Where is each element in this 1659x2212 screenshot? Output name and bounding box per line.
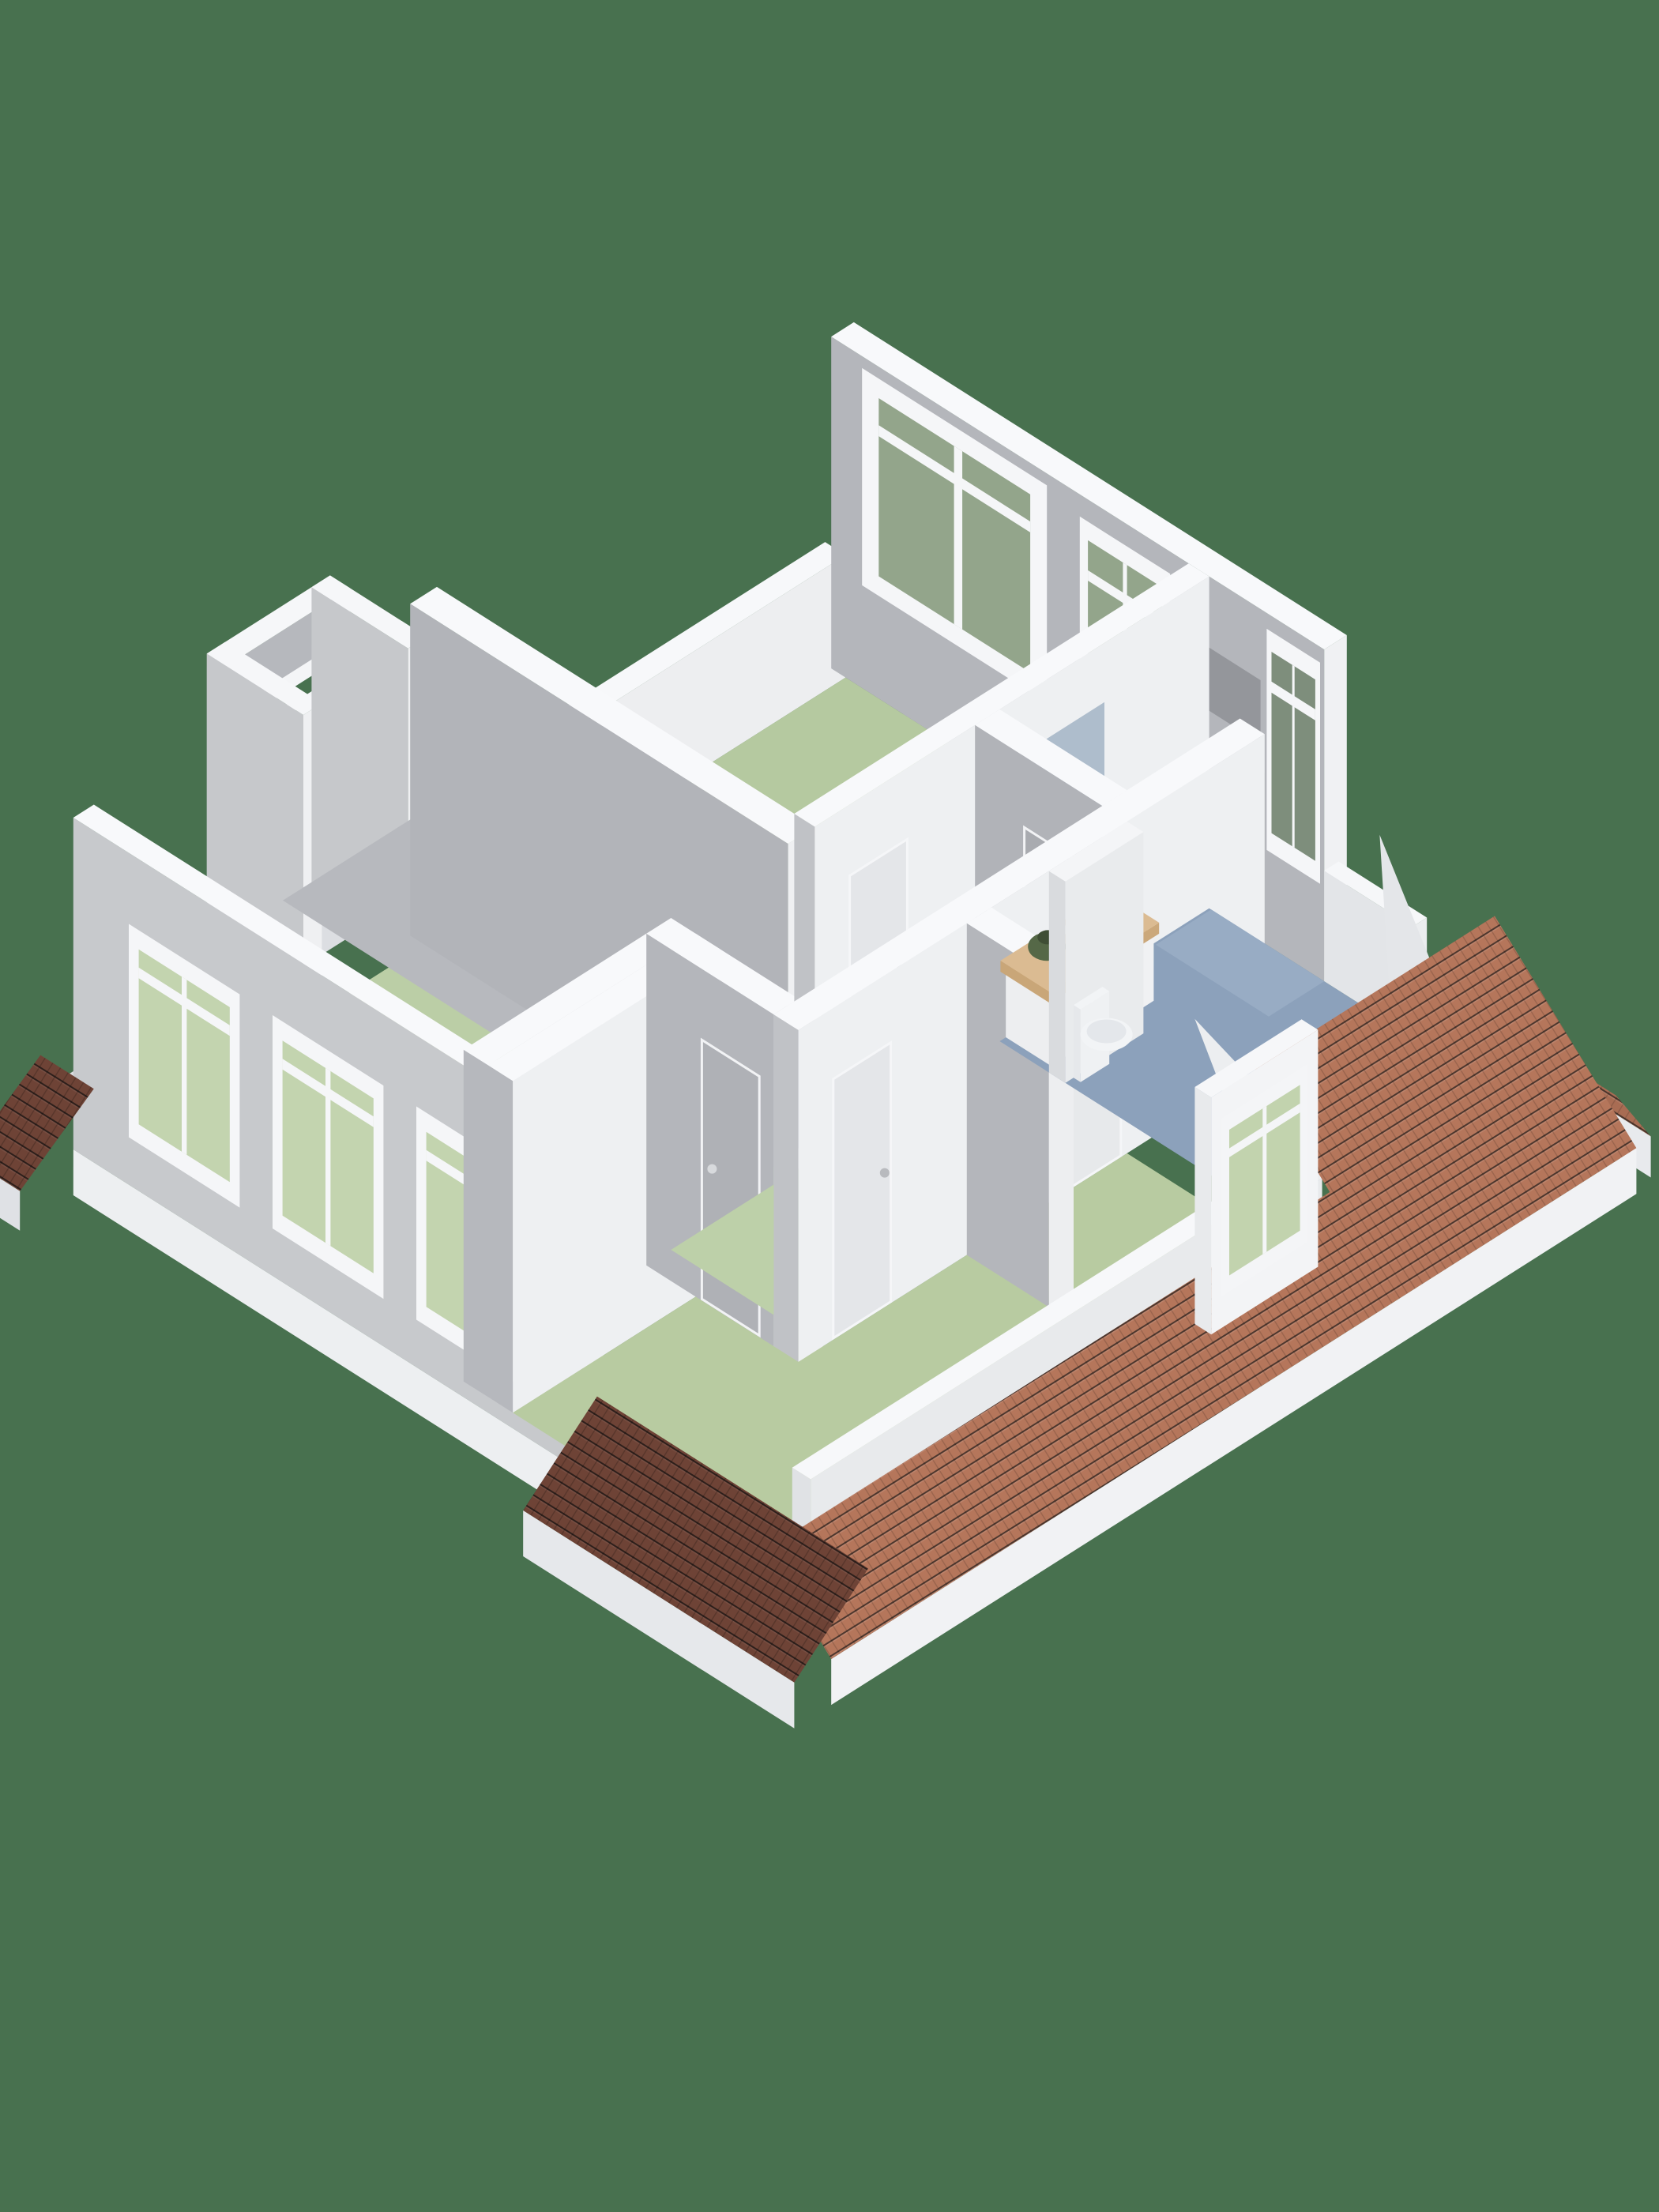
window-bathroom-mullion bbox=[1292, 665, 1295, 848]
window-bedroom1-mullion bbox=[954, 446, 963, 630]
wall-toilet-stub-face-sw bbox=[1049, 871, 1066, 1083]
dormer3-frame-face-sw bbox=[1194, 1087, 1211, 1334]
toilet-seat bbox=[1087, 1020, 1127, 1044]
door-bedroom2-handle bbox=[707, 1164, 717, 1174]
door-bedroom3-leaf bbox=[833, 1043, 891, 1338]
wall-bedroom2-se-face-sw bbox=[464, 1050, 488, 1398]
door-bedroom3-handle bbox=[880, 1168, 890, 1178]
wall-bedroom23-divider-face-sw bbox=[488, 1065, 513, 1413]
toilet-tank-face-sw bbox=[1074, 1005, 1081, 1082]
floorplan-viewport[interactable] bbox=[0, 0, 1659, 2212]
floorplan-3d-render bbox=[0, 0, 1659, 2212]
wall-hall-se-face-sw bbox=[773, 1014, 798, 1362]
